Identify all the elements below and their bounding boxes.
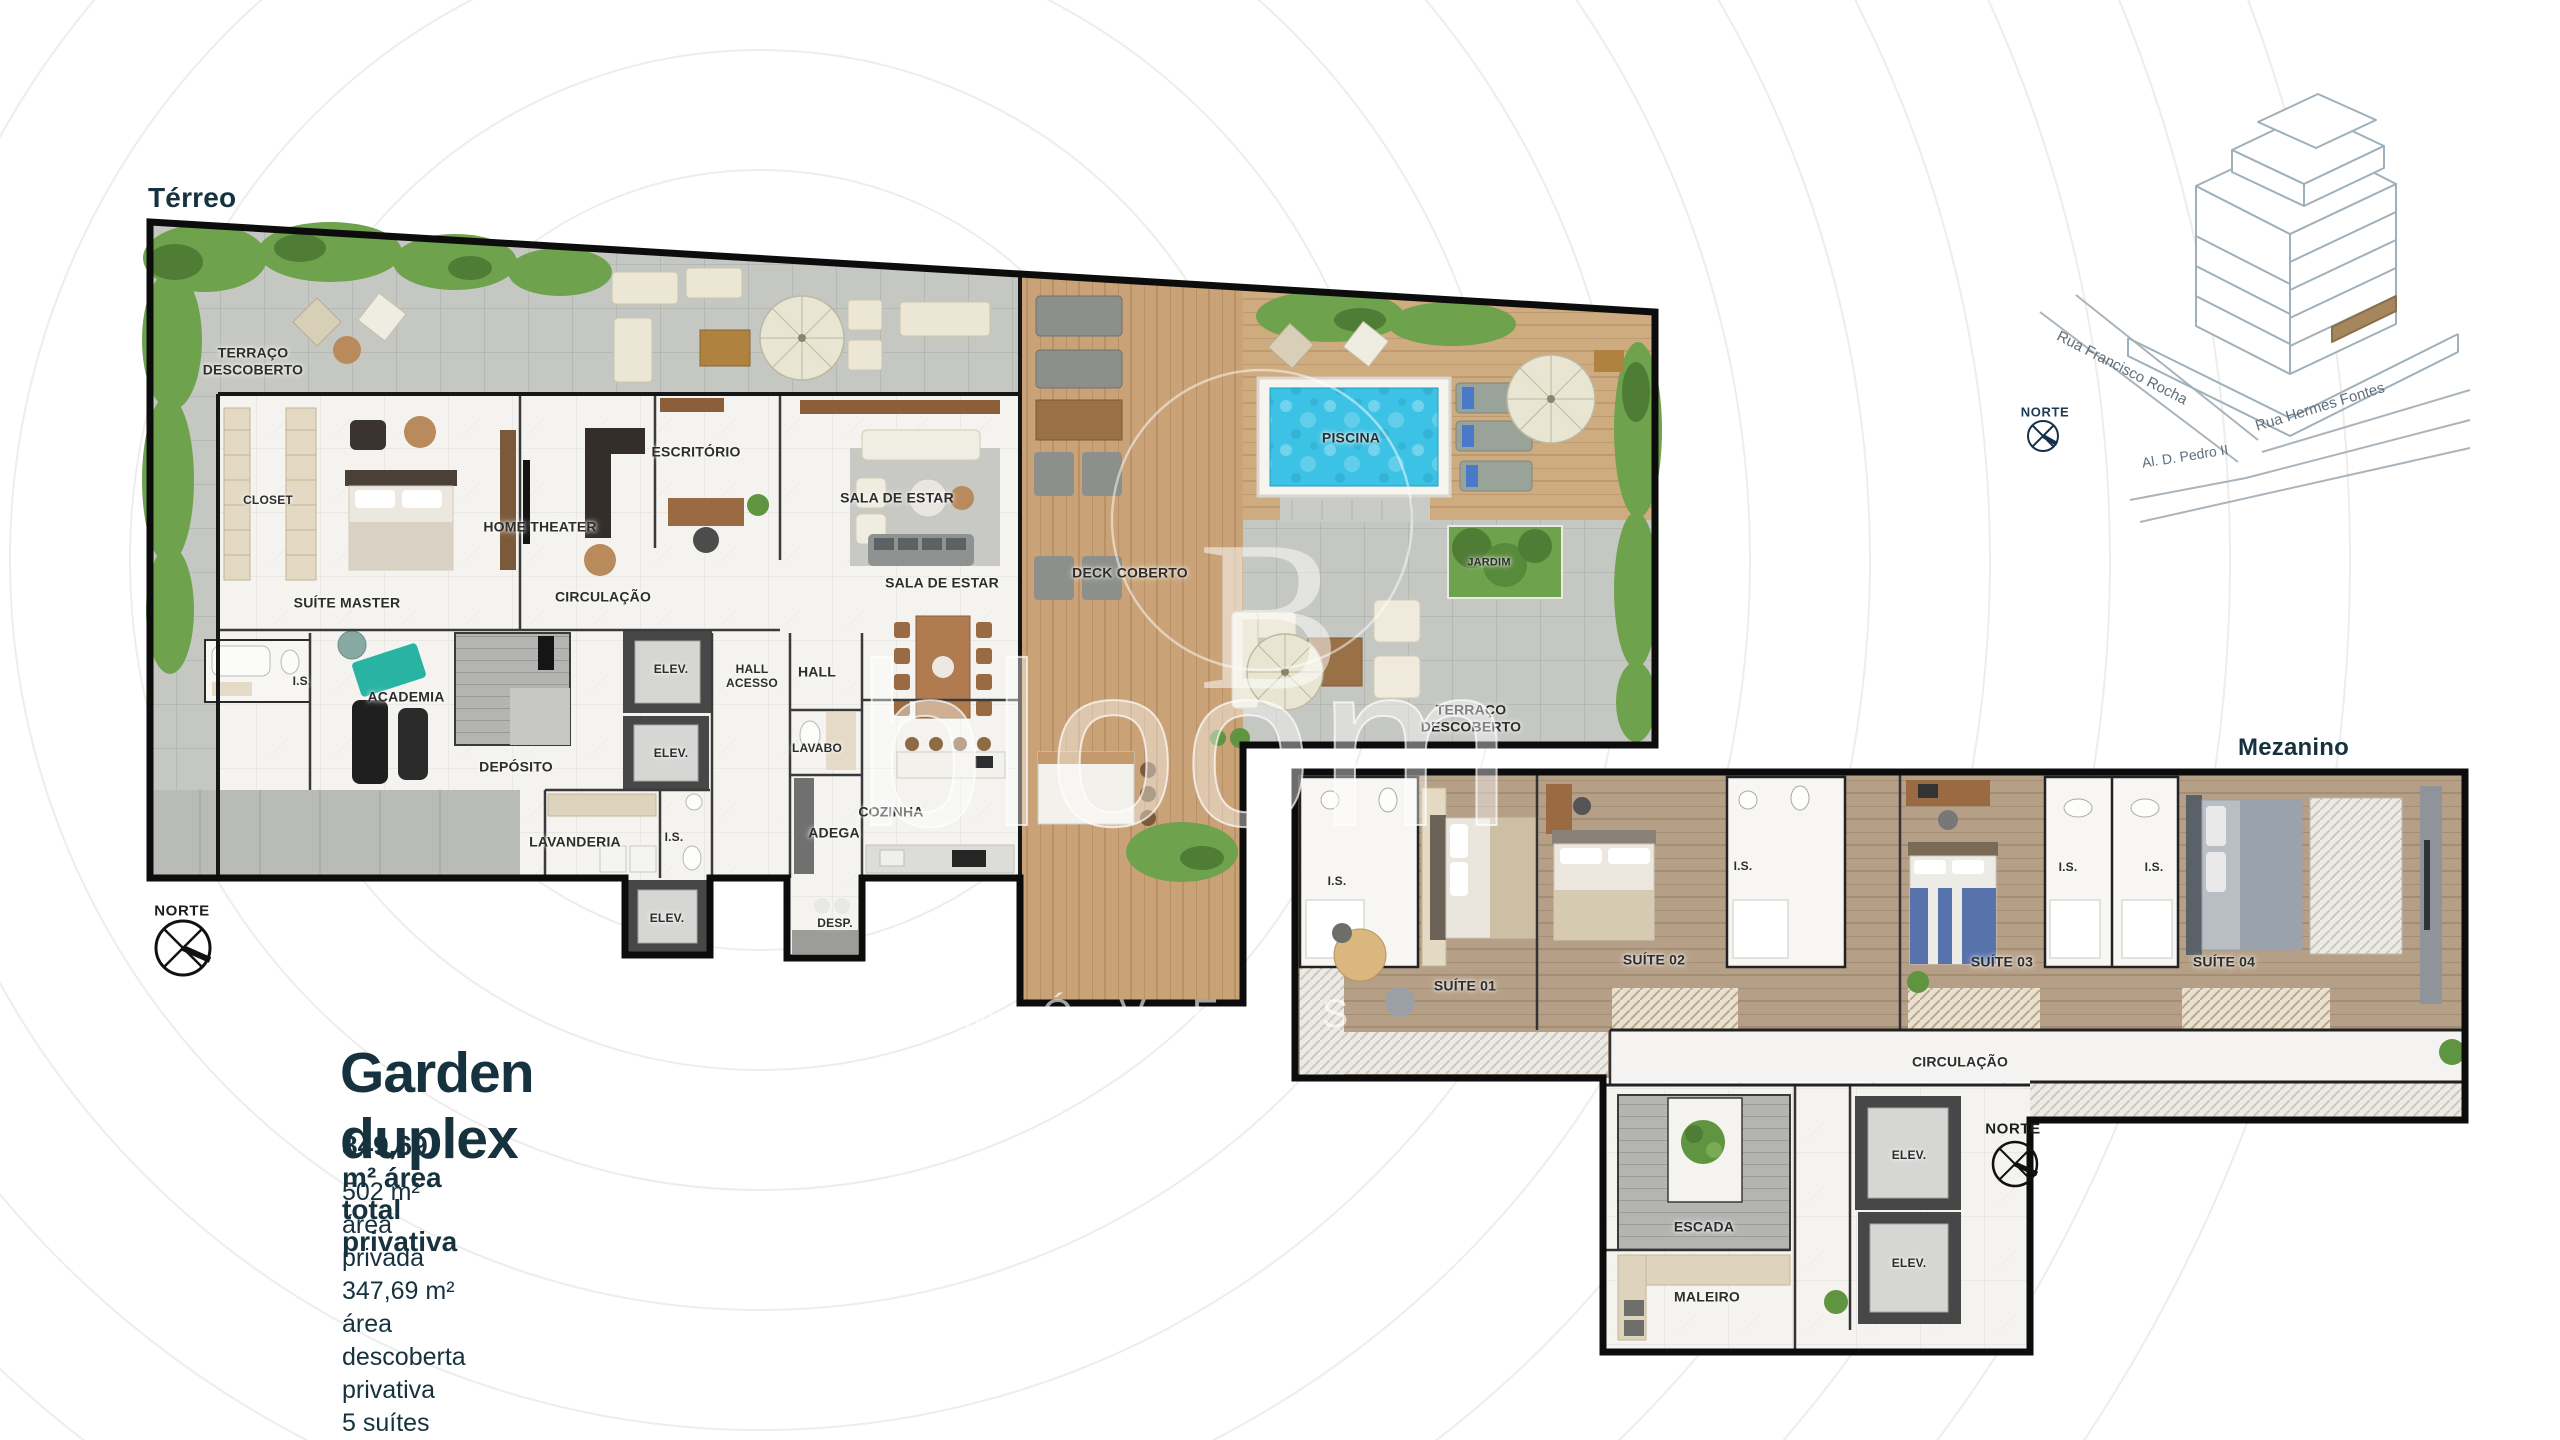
room-label-is-2: I.S. xyxy=(665,830,684,844)
norte-label-locator: NORTE xyxy=(2021,405,2070,420)
room-label-home-theater: HOME THEATER xyxy=(483,519,596,536)
room-label-circulacao: CIRCULAÇÃO xyxy=(555,589,651,606)
room-label-elev-2: ELEV. xyxy=(654,746,689,760)
room-label-terraco-descoberto: TERRAÇO DESCOBERTO xyxy=(198,344,308,377)
room-label-piscina: PISCINA xyxy=(1322,430,1380,447)
room-label-suite-master: SUÍTE MASTER xyxy=(294,595,401,612)
room-label-mz-is-2: I.S. xyxy=(1734,859,1753,873)
room-label-suite-04: SUÍTE 04 xyxy=(2193,954,2255,971)
mezanino-title: Mezanino xyxy=(2238,734,2349,762)
room-label-deposito: DEPÓSITO xyxy=(479,759,553,776)
room-label-mz-elev-1: ELEV. xyxy=(1892,1148,1927,1162)
street-label-pedro-ii: Al. D. Pedro II xyxy=(2141,441,2230,470)
room-label-terraco-descoberto-2: TERRAÇO DESCOBERTO xyxy=(1409,701,1534,734)
room-label-sala-de-estar-2: SALA DE ESTAR xyxy=(885,575,999,592)
room-label-adega: ADEGA xyxy=(808,825,860,842)
room-label-mz-circulacao: CIRCULAÇÃO xyxy=(1912,1054,2008,1071)
room-label-suite-01: SUÍTE 01 xyxy=(1434,978,1496,995)
room-label-hall-acesso: HALL ACESSO xyxy=(717,662,787,690)
room-label-academia: ACADEMIA xyxy=(367,689,444,706)
room-label-escada: ESCADA xyxy=(1674,1219,1734,1236)
room-label-elev-1: ELEV. xyxy=(654,662,689,676)
room-label-sala-de-estar-1: SALA DE ESTAR xyxy=(840,490,954,507)
room-label-mz-is-1: I.S. xyxy=(1328,874,1347,888)
room-label-escritorio: ESCRITÓRIO xyxy=(651,444,740,461)
norte-label-terreo: NORTE xyxy=(154,903,210,920)
room-label-lavabo: LAVABO xyxy=(792,741,842,755)
floorplan-sheet: Térreo Mezanino TERRAÇO DESCOBERTO CLOSE… xyxy=(0,0,2560,1440)
room-label-elev-3: ELEV. xyxy=(650,911,685,925)
room-label-mz-elev-2: ELEV. xyxy=(1892,1256,1927,1270)
room-label-mz-is-4: I.S. xyxy=(2145,860,2164,874)
room-label-cozinha: COZINHA xyxy=(858,804,923,821)
terreo-title: Térreo xyxy=(148,182,236,214)
room-label-lavanderia: LAVANDERIA xyxy=(529,834,621,851)
room-label-desp: DESP. xyxy=(817,916,852,930)
room-label-is-1: I.S. xyxy=(293,674,312,688)
detail-area-privada: 502 m² área privada xyxy=(342,1176,466,1275)
room-label-suite-03: SUÍTE 03 xyxy=(1971,954,2033,971)
detail-suites: 5 suítes xyxy=(342,1407,466,1440)
room-label-deck-coberto: DECK COBERTO xyxy=(1072,565,1188,582)
room-label-maleiro: MALEIRO xyxy=(1674,1289,1740,1306)
room-label-jardim: JARDIM xyxy=(1467,557,1510,570)
norte-label-mezanino: NORTE xyxy=(1985,1121,2041,1138)
detail-area-descoberta: 347,69 m² área descoberta privativa xyxy=(342,1275,466,1407)
room-label-mz-is-3: I.S. xyxy=(2059,860,2078,874)
street-label-francisco-rocha: Rua Francisco Rocha xyxy=(2054,328,2190,409)
room-label-closet: CLOSET xyxy=(243,493,293,507)
room-label-hall: HALL xyxy=(798,664,836,681)
street-label-hermes-fontes: Rua Hermes Fontes xyxy=(2253,379,2386,434)
unit-details: 502 m² área privada 347,69 m² área desco… xyxy=(342,1176,466,1440)
room-label-suite-02: SUÍTE 02 xyxy=(1623,952,1685,969)
